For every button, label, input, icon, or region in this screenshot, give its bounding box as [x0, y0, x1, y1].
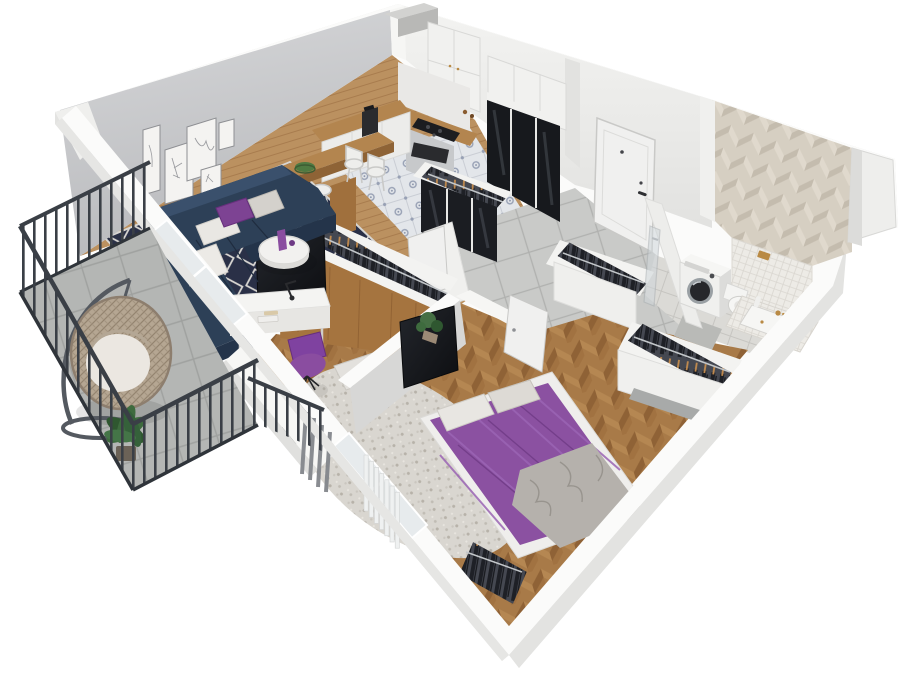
coffee-maker — [362, 107, 378, 137]
spice-jar — [470, 114, 474, 118]
door-lock — [639, 181, 642, 184]
cabinet-handle — [457, 68, 460, 71]
desk-lamp-base — [290, 296, 295, 301]
entry-wall-pillar — [565, 58, 580, 168]
washer-knob — [710, 274, 715, 279]
bar-plant-bowl — [295, 162, 315, 172]
bathtub-faucet-brass — [775, 310, 780, 315]
apartment-3d-scene — [0, 0, 905, 700]
cabinet-handle — [449, 65, 452, 68]
plant-leaves — [431, 320, 443, 332]
bathroom-wall-pillar — [700, 96, 715, 222]
plant-leaves — [416, 322, 426, 332]
door-peephole — [620, 150, 624, 154]
floorplan-render — [0, 0, 905, 700]
burner — [432, 133, 435, 136]
books-on-desk — [258, 315, 278, 322]
burner — [438, 129, 442, 133]
chair-seat — [345, 159, 363, 169]
spice-jar — [463, 110, 467, 114]
burner — [426, 125, 430, 129]
door-handle — [512, 328, 516, 332]
brass-drain — [760, 320, 763, 323]
vase-decor — [289, 240, 295, 246]
picture-frame — [219, 119, 234, 150]
chair-seat — [367, 167, 385, 177]
